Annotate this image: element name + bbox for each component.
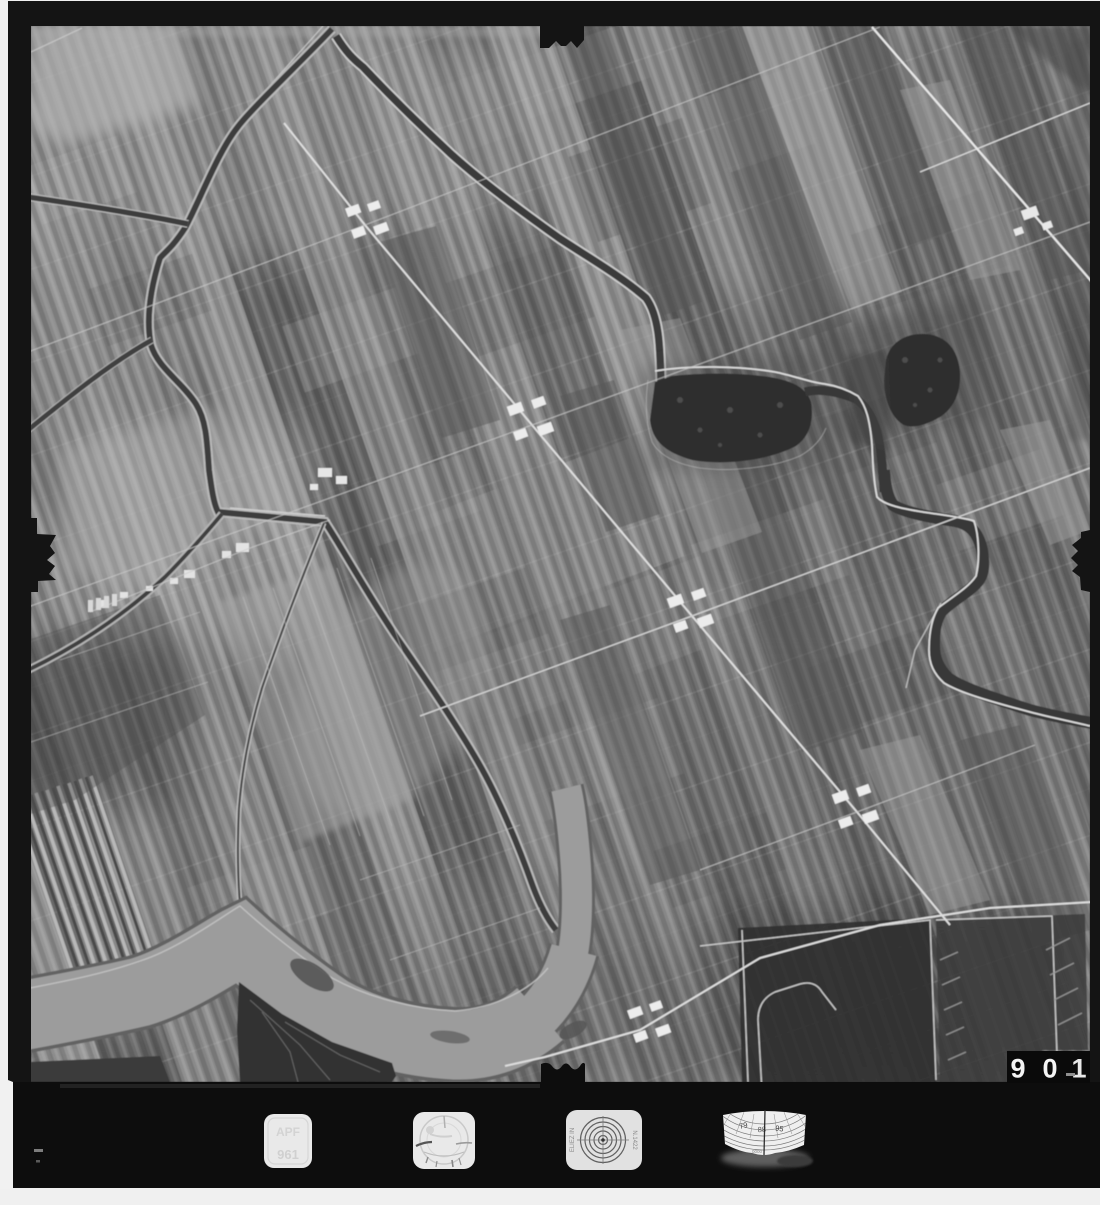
svg-text:N.1422: N.1422: [631, 1130, 637, 1150]
svg-text:0000: 0000: [752, 1149, 763, 1154]
svg-text:1: 1: [1071, 1054, 1086, 1084]
svg-text:ELIEZ IN: ELIEZ IN: [570, 1128, 576, 1152]
svg-text:95: 95: [775, 1123, 785, 1133]
svg-text:APF: APF: [276, 1125, 300, 1139]
svg-text:0: 0: [1042, 1054, 1057, 1084]
svg-text:961: 961: [277, 1147, 299, 1162]
svg-text:9: 9: [1010, 1054, 1025, 1084]
